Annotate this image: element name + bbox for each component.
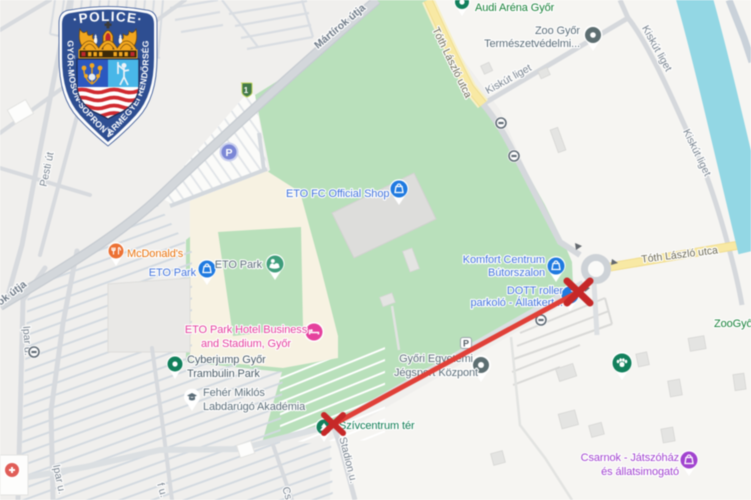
svg-text:ETO Park: ETO Park bbox=[149, 267, 197, 279]
svg-text:Audi Aréna Győr: Audi Aréna Győr bbox=[475, 2, 555, 14]
svg-text:P: P bbox=[225, 147, 232, 159]
svg-text:Labdarúgó Akadémia: Labdarúgó Akadémia bbox=[203, 401, 306, 413]
svg-text:ETO FC Official Shop: ETO FC Official Shop bbox=[286, 188, 389, 200]
svg-text:P: P bbox=[463, 339, 469, 349]
svg-text:Természetvédelmi...: Természetvédelmi... bbox=[484, 38, 580, 50]
svg-text:McDonald's: McDonald's bbox=[127, 248, 184, 260]
svg-text:Zoo Győr: Zoo Győr bbox=[535, 25, 580, 37]
svg-text:ETO Park: ETO Park bbox=[215, 259, 263, 271]
svg-text:and Stadium, Győr: and Stadium, Győr bbox=[201, 338, 291, 350]
svg-text:Csarnok - Játszóház: Csarnok - Játszóház bbox=[581, 452, 679, 464]
svg-text:ETO Park Hotel Business: ETO Park Hotel Business bbox=[185, 324, 308, 336]
svg-text:Bútorszalon: Bútorszalon bbox=[488, 267, 545, 279]
svg-text:1: 1 bbox=[244, 86, 249, 95]
svg-text:Trambulin Park: Trambulin Park bbox=[187, 368, 260, 380]
svg-text:Cyberjump Győr: Cyberjump Győr bbox=[187, 354, 266, 366]
svg-text:Szívcentrum tér: Szívcentrum tér bbox=[339, 420, 415, 432]
svg-text:és állatsimogató: és állatsimogató bbox=[601, 466, 679, 478]
svg-text:ZooGyőr...: ZooGyőr... bbox=[714, 318, 751, 330]
svg-text:DOTT roller: DOTT roller bbox=[507, 285, 564, 297]
svg-text:Komfort Centrum: Komfort Centrum bbox=[463, 254, 545, 266]
svg-text:Fehér Miklós: Fehér Miklós bbox=[203, 387, 265, 399]
